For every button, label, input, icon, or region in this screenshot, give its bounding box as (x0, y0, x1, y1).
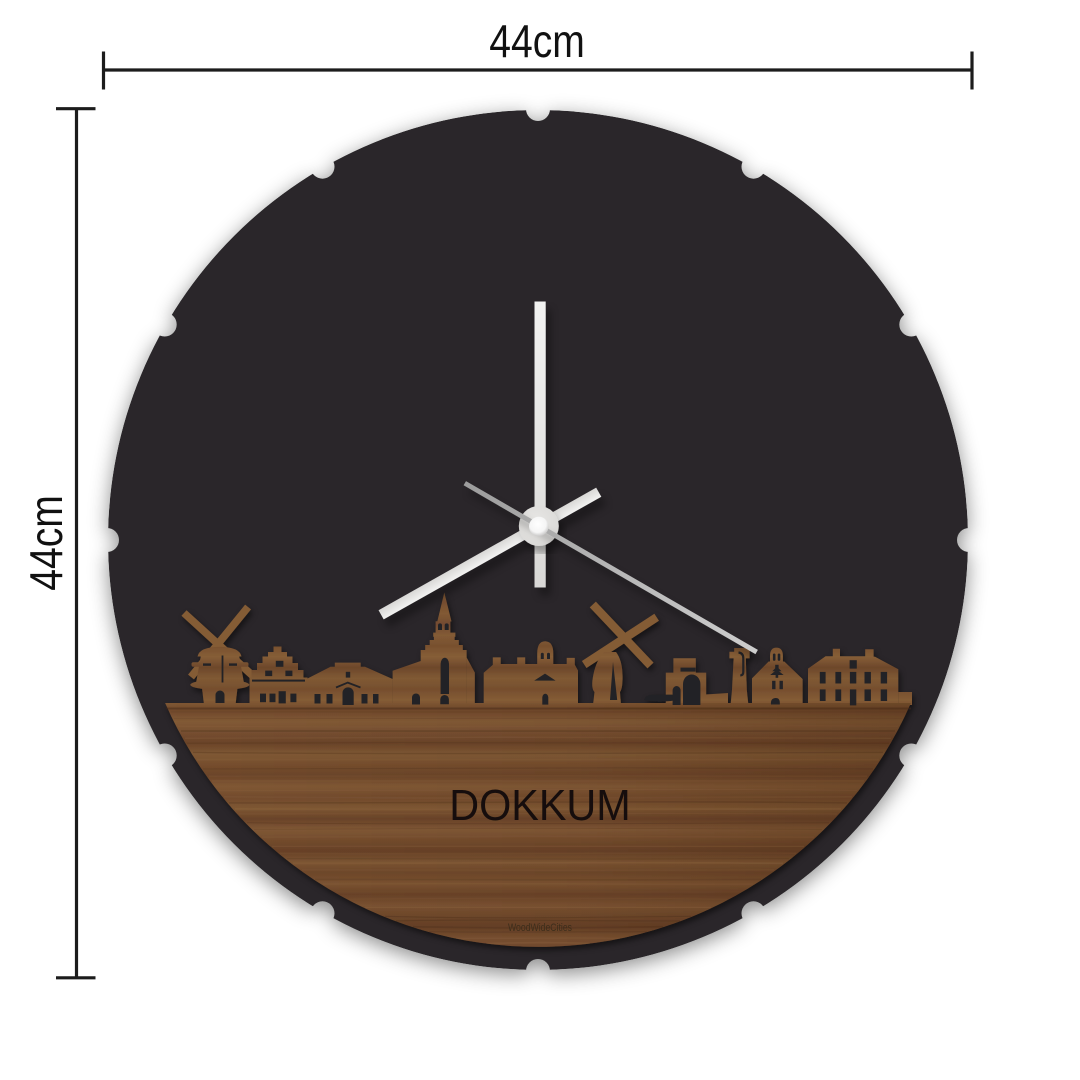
svg-text:44cm: 44cm (489, 16, 585, 68)
svg-text:WoodWideCities: WoodWideCities (508, 922, 572, 934)
svg-text:DOKKUM: DOKKUM (449, 781, 630, 830)
svg-text:44cm: 44cm (21, 495, 73, 591)
